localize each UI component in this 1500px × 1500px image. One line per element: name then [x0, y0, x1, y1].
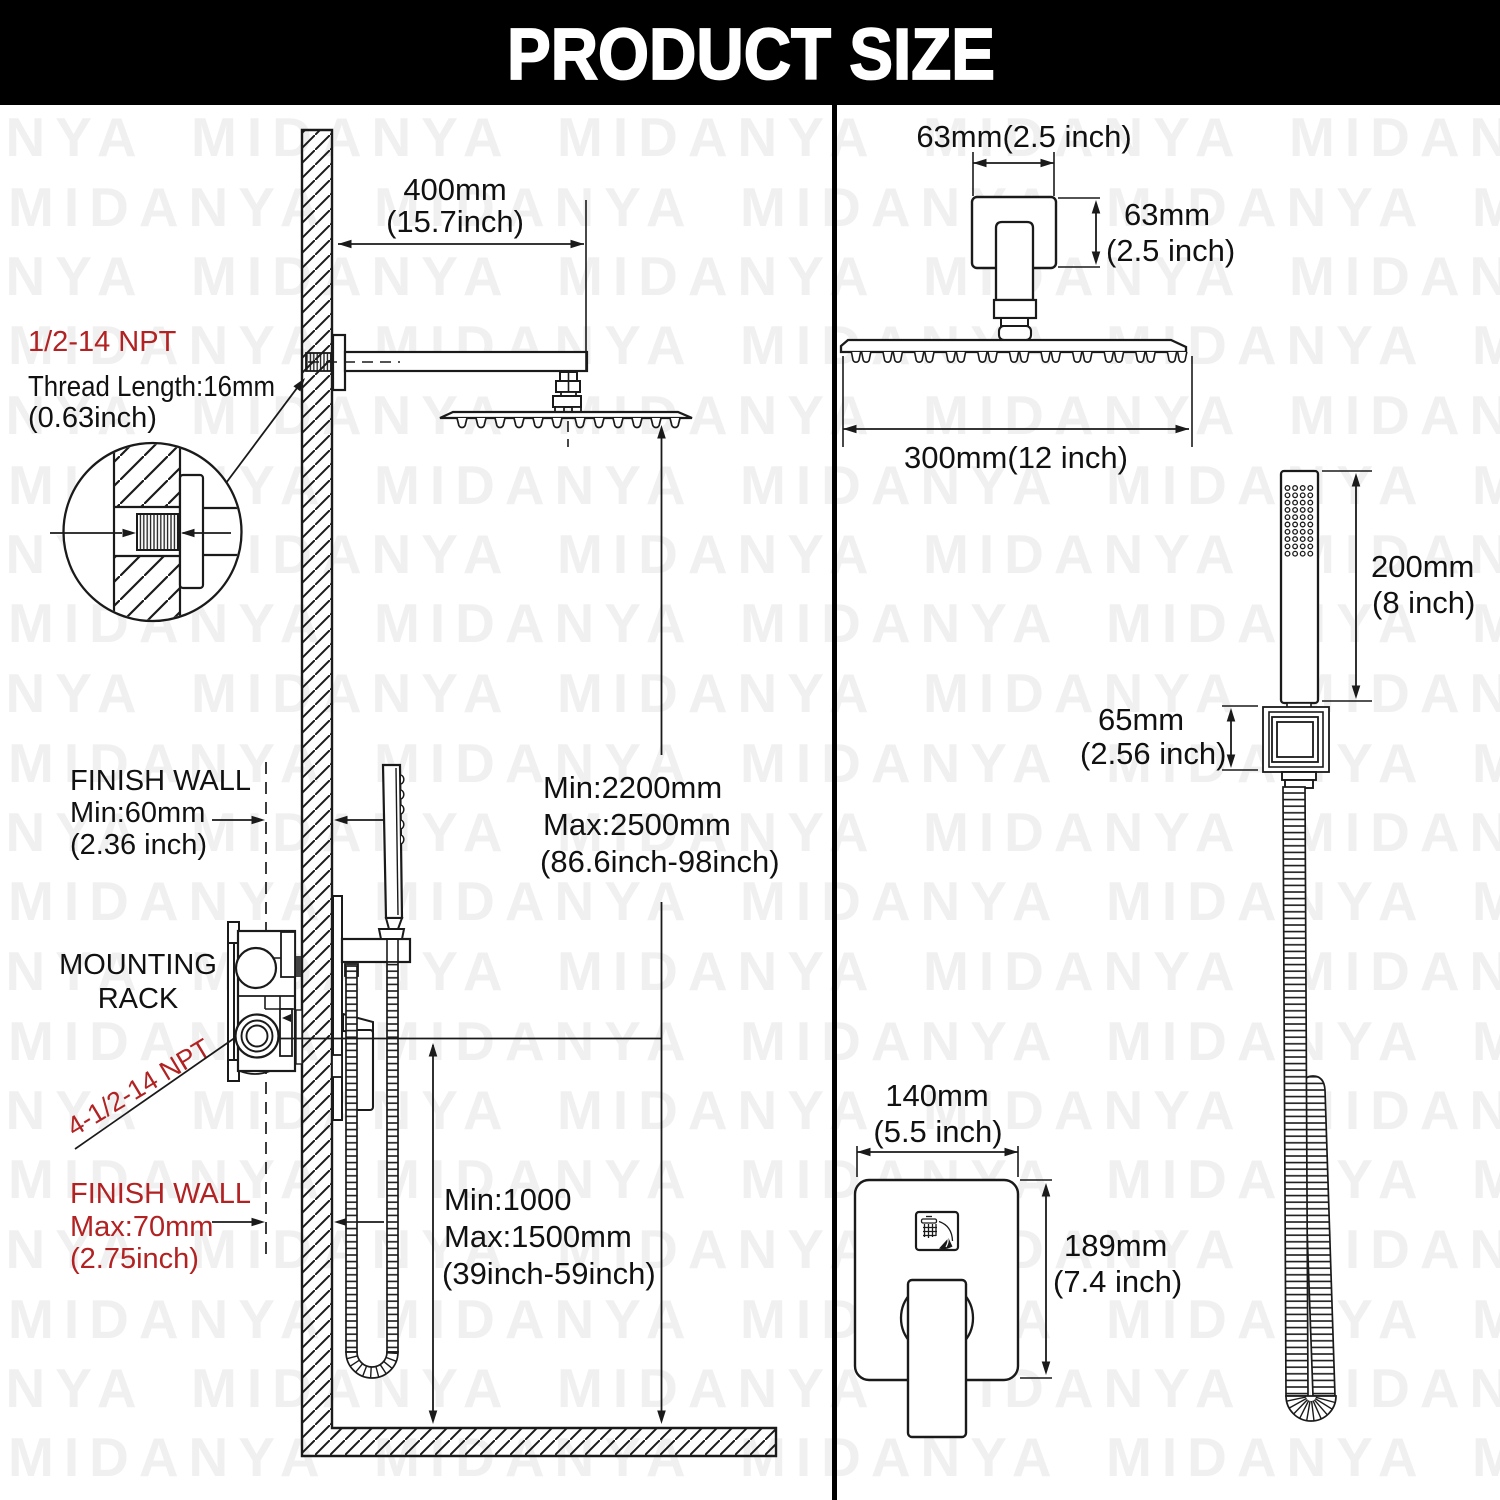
svg-text:MIDANYA: MIDANYA — [557, 940, 879, 1002]
svg-text:MIDANYA: MIDANYA — [557, 1496, 879, 1500]
svg-text:MIDANYA: MIDANYA — [0, 245, 147, 307]
svg-text:189mm: 189mm — [1064, 1228, 1167, 1263]
svg-text:(7.4 inch): (7.4 inch) — [1053, 1264, 1182, 1299]
svg-text:MIDANYA: MIDANYA — [374, 592, 696, 654]
svg-text:MIDANYA: MIDANYA — [923, 801, 1245, 863]
svg-text:(2.56 inch): (2.56 inch) — [1080, 736, 1226, 771]
svg-text:(2.75inch): (2.75inch) — [70, 1243, 199, 1275]
svg-text:Max:1500mm: Max:1500mm — [444, 1219, 632, 1254]
svg-text:MIDANYA: MIDANYA — [923, 662, 1245, 724]
svg-text:MIDANYA: MIDANYA — [374, 870, 696, 932]
svg-text:MIDANYA: MIDANYA — [1289, 106, 1500, 168]
svg-text:63mm(2.5 inch): 63mm(2.5 inch) — [916, 119, 1131, 154]
svg-text:Min:60mm: Min:60mm — [70, 797, 205, 829]
svg-text:MIDANYA: MIDANYA — [1472, 1148, 1500, 1210]
svg-text:Min:1000: Min:1000 — [444, 1182, 572, 1217]
svg-text:MIDANYA: MIDANYA — [557, 523, 879, 585]
svg-text:MIDANYA: MIDANYA — [1472, 176, 1500, 238]
svg-text:RACK: RACK — [98, 983, 179, 1015]
svg-text:MIDANYA: MIDANYA — [0, 1357, 147, 1419]
svg-text:MIDANYA: MIDANYA — [191, 106, 513, 168]
svg-text:MIDANYA: MIDANYA — [557, 1357, 879, 1419]
svg-text:MIDANYA: MIDANYA — [1472, 870, 1500, 932]
svg-text:FINISH WALL: FINISH WALL — [70, 1178, 251, 1210]
svg-text:Max:2500mm: Max:2500mm — [543, 807, 731, 842]
svg-text:(2.5 inch): (2.5 inch) — [1106, 233, 1235, 268]
svg-text:MIDANYA: MIDANYA — [1289, 384, 1500, 446]
svg-text:MIDANYA: MIDANYA — [374, 1010, 696, 1072]
svg-text:MIDANYA: MIDANYA — [374, 454, 696, 516]
svg-text:MIDANYA: MIDANYA — [8, 1426, 330, 1488]
svg-text:(8 inch): (8 inch) — [1372, 585, 1475, 620]
svg-text:MIDANYA: MIDANYA — [1472, 1426, 1500, 1488]
svg-text:MIDANYA: MIDANYA — [740, 870, 1062, 932]
svg-text:(2.36 inch): (2.36 inch) — [70, 829, 207, 861]
svg-text:Min:2200mm: Min:2200mm — [543, 770, 722, 805]
svg-text:MIDANYA: MIDANYA — [1289, 1496, 1500, 1500]
svg-text:63mm: 63mm — [1124, 197, 1210, 232]
svg-text:MIDANYA: MIDANYA — [0, 106, 147, 168]
svg-text:140mm: 140mm — [885, 1078, 988, 1113]
svg-text:MIDANYA: MIDANYA — [1472, 1288, 1500, 1350]
svg-text:Thread Length:16mm: Thread Length:16mm — [28, 371, 275, 403]
svg-text:(0.63inch): (0.63inch) — [28, 402, 157, 434]
svg-text:FINISH WALL: FINISH WALL — [70, 765, 251, 797]
svg-text:MIDANYA: MIDANYA — [557, 245, 879, 307]
svg-text:MIDANYA: MIDANYA — [1289, 801, 1500, 863]
svg-text:MIDANYA: MIDANYA — [923, 1496, 1245, 1500]
svg-text:MIDANYA: MIDANYA — [1472, 732, 1500, 794]
svg-text:(5.5 inch): (5.5 inch) — [873, 1114, 1002, 1149]
svg-text:MIDANYA: MIDANYA — [557, 662, 879, 724]
svg-text:MIDANYA: MIDANYA — [740, 592, 1062, 654]
svg-text:MIDANYA: MIDANYA — [0, 1496, 147, 1500]
svg-text:65mm: 65mm — [1098, 702, 1184, 737]
svg-text:MIDANYA: MIDANYA — [1472, 592, 1500, 654]
svg-text:MIDANYA: MIDANYA — [1472, 1010, 1500, 1072]
svg-text:MIDANYA: MIDANYA — [557, 1079, 879, 1141]
svg-text:MIDANYA: MIDANYA — [1472, 314, 1500, 376]
svg-text:MIDANYA: MIDANYA — [1106, 1426, 1428, 1488]
svg-text:MIDANYA: MIDANYA — [191, 662, 513, 724]
svg-text:(86.6inch-98inch): (86.6inch-98inch) — [540, 844, 780, 879]
svg-text:MIDANYA: MIDANYA — [740, 1010, 1062, 1072]
svg-text:MIDANYA: MIDANYA — [191, 1496, 513, 1500]
svg-text:MIDANYA: MIDANYA — [8, 870, 330, 932]
svg-text:MIDANYA: MIDANYA — [557, 106, 879, 168]
svg-text:MIDANYA: MIDANYA — [1289, 245, 1500, 307]
svg-text:MOUNTING: MOUNTING — [59, 949, 217, 981]
svg-text:MIDANYA: MIDANYA — [0, 662, 147, 724]
svg-text:PRODUCT SIZE: PRODUCT SIZE — [507, 15, 995, 95]
svg-text:MIDANYA: MIDANYA — [923, 940, 1245, 1002]
svg-text:MIDANYA: MIDANYA — [1106, 1148, 1428, 1210]
svg-text:1/2-14 NPT: 1/2-14 NPT — [28, 326, 177, 358]
svg-text:MIDANYA: MIDANYA — [8, 1288, 330, 1350]
svg-text:300mm(12 inch): 300mm(12 inch) — [904, 440, 1128, 475]
svg-text:MIDANYA: MIDANYA — [1472, 454, 1500, 516]
svg-text:MIDANYA: MIDANYA — [740, 1426, 1062, 1488]
svg-text:MIDANYA: MIDANYA — [374, 1288, 696, 1350]
svg-text:(15.7inch): (15.7inch) — [386, 204, 524, 239]
svg-text:MIDANYA: MIDANYA — [1106, 870, 1428, 932]
svg-text:MIDANYA: MIDANYA — [923, 384, 1245, 446]
svg-text:200mm: 200mm — [1371, 549, 1474, 584]
svg-text:MIDANYA: MIDANYA — [740, 732, 1062, 794]
svg-text:(39inch-59inch): (39inch-59inch) — [442, 1256, 656, 1291]
svg-text:MIDANYA: MIDANYA — [1106, 1010, 1428, 1072]
svg-text:MIDANYA: MIDANYA — [8, 176, 330, 238]
svg-text:400mm: 400mm — [403, 172, 506, 207]
svg-text:MIDANYA: MIDANYA — [923, 523, 1245, 585]
svg-text:MIDANYA: MIDANYA — [191, 245, 513, 307]
svg-text:MIDANYA: MIDANYA — [191, 801, 513, 863]
svg-text:MIDANYA: MIDANYA — [1106, 454, 1428, 516]
svg-text:Max:70mm: Max:70mm — [70, 1211, 213, 1243]
svg-text:MIDANYA: MIDANYA — [1289, 940, 1500, 1002]
